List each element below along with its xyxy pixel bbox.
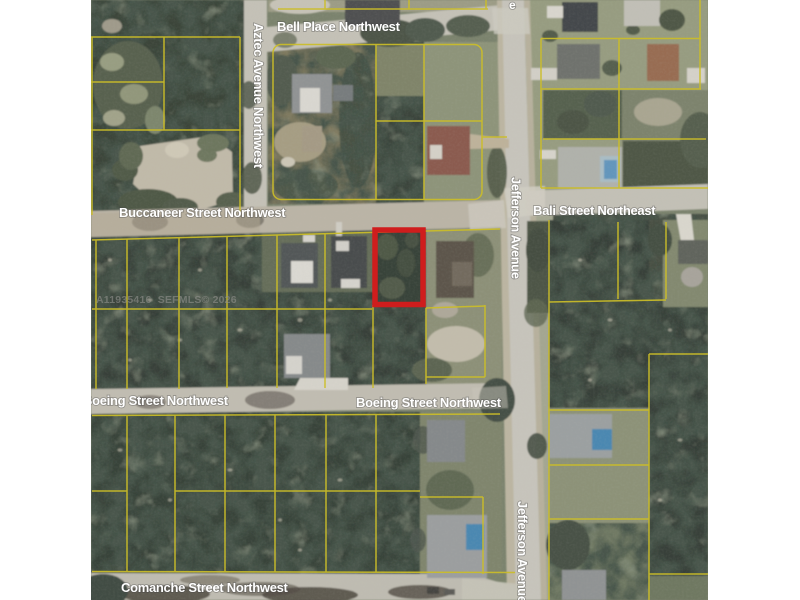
svg-text:Comanche Street Northwest: Comanche Street Northwest: [121, 580, 289, 595]
svg-text:Jefferson Avenue: Jefferson Avenue: [515, 501, 530, 600]
svg-text:Boeing Street Northwest: Boeing Street Northwest: [356, 395, 502, 410]
svg-text:Bali Street Northeast: Bali Street Northeast: [533, 203, 656, 218]
svg-text:Jefferson Avenue: Jefferson Avenue: [509, 177, 524, 279]
svg-text:Boeing Street Northwest: Boeing Street Northwest: [83, 393, 229, 408]
svg-text:Buccaneer Street Northwest: Buccaneer Street Northwest: [119, 205, 286, 220]
svg-text:A11935416 SEFMLS© 2026: A11935416 SEFMLS© 2026: [96, 294, 237, 306]
svg-text:Bell Place Northwest: Bell Place Northwest: [277, 19, 401, 34]
svg-text:e: e: [509, 0, 516, 12]
svg-text:Aztec Avenue Northwest: Aztec Avenue Northwest: [251, 23, 266, 169]
